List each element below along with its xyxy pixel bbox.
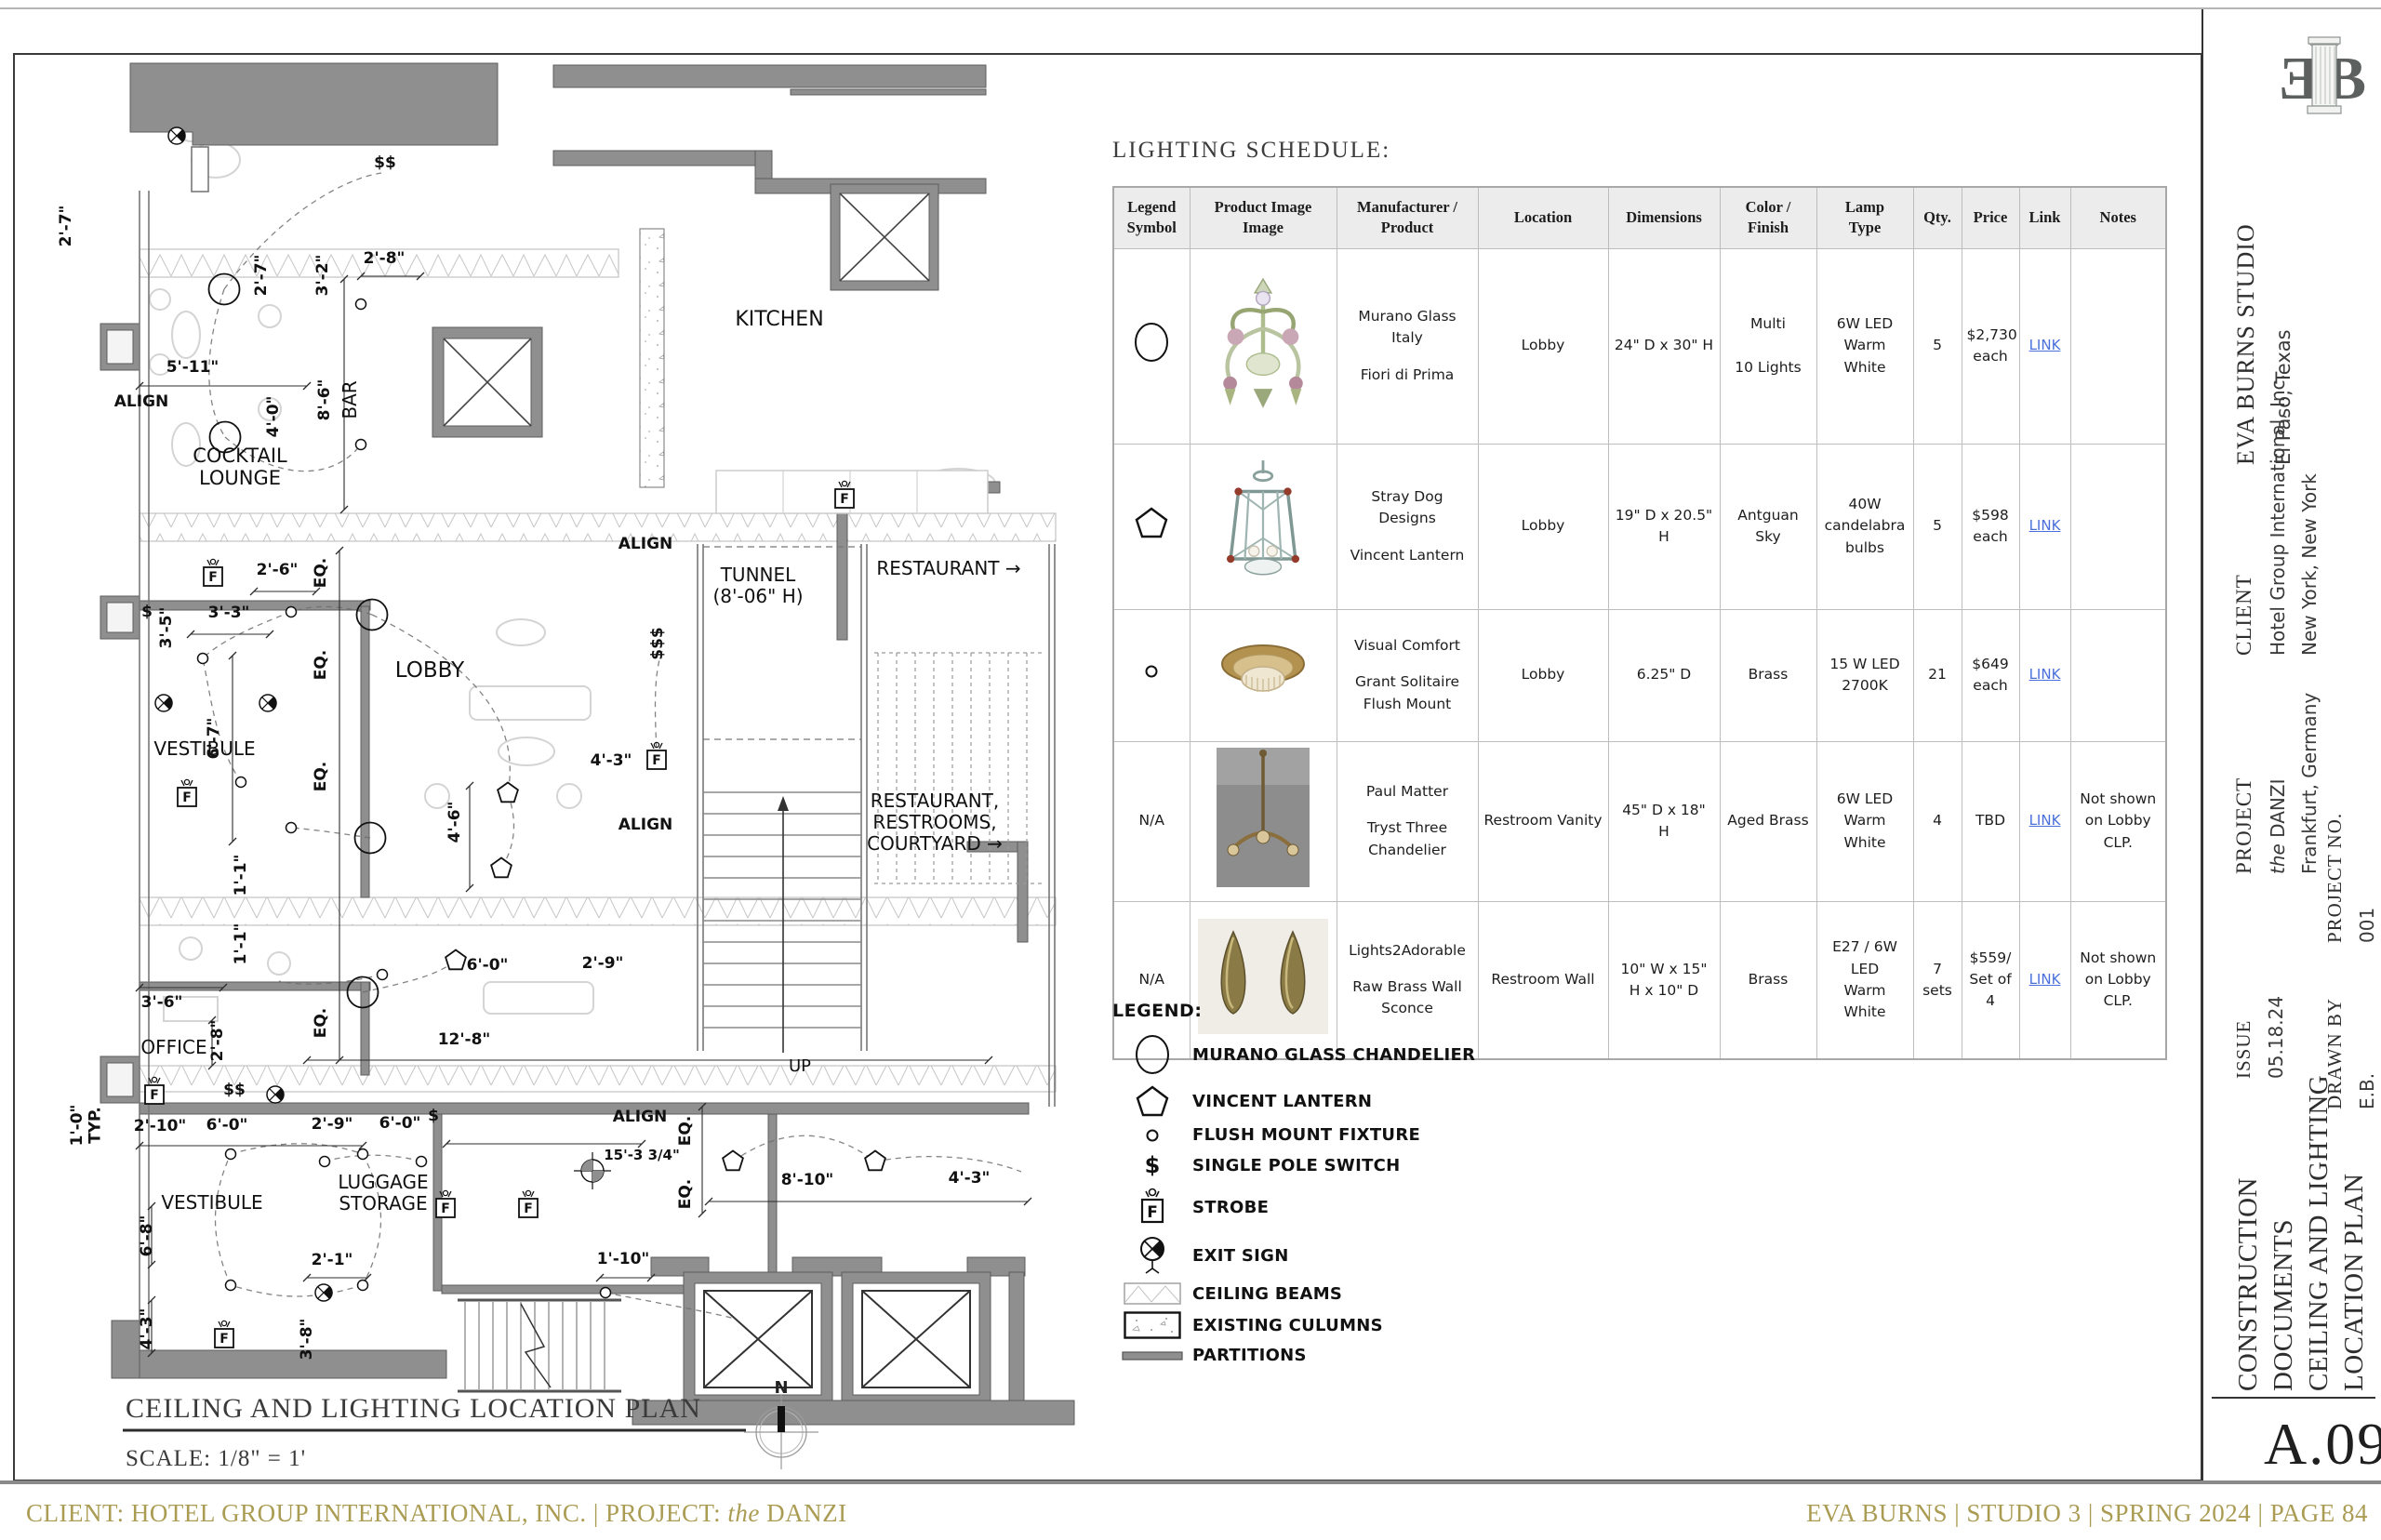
- svg-text:F: F: [150, 1088, 159, 1103]
- product-link[interactable]: LINK: [2029, 666, 2061, 683]
- flush-mount-symbol: [226, 1149, 236, 1160]
- sheet-title-block: CONSTRUCTION DOCUMENTS CEILING AND LIGHT…: [2230, 1066, 2372, 1391]
- lamp-type-cell: 6W LED Warm White: [1816, 741, 1913, 901]
- qty-cell: 21: [1913, 609, 1962, 741]
- notes-cell: [2070, 444, 2166, 609]
- table-row: N/APaul MatterTryst Three ChandelierRest…: [1113, 741, 2166, 901]
- schedule-heading: LIGHTING SCHEDULE:: [1112, 138, 2173, 164]
- lighting-schedule-table: Legend SymbolProduct Image ImageManufact…: [1112, 186, 2167, 1060]
- flush-mount-symbol: [198, 654, 208, 664]
- column-header: Notes: [2070, 187, 2166, 248]
- project-no-block: PROJECT NO. 001: [2318, 802, 2381, 943]
- client-label: CLIENT: [2227, 335, 2262, 656]
- exit-sign-symbol: [259, 695, 276, 711]
- room-label: OFFICE: [140, 1036, 206, 1058]
- column-header: Link: [2019, 187, 2070, 248]
- column-header: Color / Finish: [1720, 187, 1816, 248]
- strobe-symbol: F: [215, 1321, 233, 1347]
- product-link[interactable]: LINK: [2029, 337, 2061, 353]
- existing-columns-icon: [1112, 1311, 1192, 1339]
- flush-mount-symbol: [378, 970, 388, 980]
- legend-item-label: FLUSH MOUNT FIXTURE: [1192, 1125, 1420, 1145]
- dim-label: EQ.: [676, 1179, 695, 1210]
- flush-mount-symbol: [320, 1157, 330, 1167]
- dim-label: $: [428, 1107, 439, 1125]
- vincent-lantern-symbol: [865, 1151, 885, 1171]
- color-finish-cell: Brass: [1720, 901, 1816, 1059]
- column-header: Location: [1478, 187, 1608, 248]
- room-label: KITCHEN: [735, 308, 823, 331]
- room-label: LUGGAGESTORAGE: [338, 1171, 428, 1215]
- footer-right: EVA BURNS | STUDIO 3 | SPRING 2024 | PAG…: [1806, 1499, 2368, 1528]
- dim-label: 1'-1": [232, 923, 250, 965]
- product-image-murano: [1190, 248, 1337, 444]
- titleblock-divider: [2201, 9, 2203, 1480]
- legend-symbol-cell: [1113, 444, 1190, 609]
- product-link[interactable]: LINK: [2029, 812, 2061, 829]
- dim-label: 4'-3": [138, 1308, 156, 1350]
- room-label: LOBBY: [395, 658, 465, 683]
- flush-mount-symbol: [356, 440, 366, 450]
- sheet-number-rule: [2212, 1397, 2375, 1399]
- dim-label: 8'-10": [781, 1171, 834, 1189]
- lamp-type-cell: E27 / 6W LED Warm White: [1816, 901, 1913, 1059]
- client-block: CLIENT Hotel Group International, Inc. N…: [2227, 335, 2325, 656]
- dim-label: 2'-7": [252, 255, 271, 297]
- dim-label: 6'-0": [467, 956, 509, 975]
- logo-column-icon: [2308, 37, 2341, 113]
- dimensions-cell: 45" D x 18" H: [1608, 741, 1720, 901]
- notes-cell: [2070, 248, 2166, 444]
- flush-mount-symbol: [356, 299, 366, 310]
- dim-label: 2'-1": [312, 1251, 353, 1269]
- plan-scale: SCALE: 1/8" = 1': [126, 1446, 306, 1471]
- notes-cell: Not shown on Lobby CLP.: [2070, 741, 2166, 901]
- room-label: BAR: [339, 380, 361, 418]
- vincent-lantern-symbol: [491, 858, 512, 878]
- lamp-type-cell: 40W candelabra bulbs: [1816, 444, 1913, 609]
- legend-item-label: EXIT SIGN: [1192, 1246, 1289, 1266]
- column-header: Price: [1962, 187, 2019, 248]
- dim-label: 2'-10": [134, 1117, 187, 1135]
- svg-text:F: F: [208, 570, 218, 585]
- legend-item-label: EXISTING CULUMNS: [1192, 1316, 1383, 1335]
- dim-label: ALIGN: [114, 392, 169, 411]
- legend-item-label: PARTITIONS: [1192, 1346, 1307, 1365]
- column-header: Product Image Image: [1190, 187, 1337, 248]
- issue-date: 05.18.24: [2260, 975, 2292, 1079]
- dim-label: $$$: [648, 627, 667, 660]
- room-label: RESTAURANT →: [876, 557, 1020, 579]
- dim-label: ALIGN: [619, 535, 673, 553]
- sheet-number: A.09: [2264, 1410, 2381, 1479]
- legend-symbol-cell: [1113, 609, 1190, 741]
- color-finish-cell: Aged Brass: [1720, 741, 1816, 901]
- legend-item: CEILING BEAMS: [1112, 1282, 1633, 1305]
- svg-text:F: F: [652, 753, 661, 768]
- legend-symbol-cell: [1113, 248, 1190, 444]
- strobe-symbol: F: [204, 559, 222, 586]
- legend-item-label: CEILING BEAMS: [1192, 1284, 1342, 1304]
- location-cell: Lobby: [1478, 609, 1608, 741]
- strobe-symbol: F: [178, 779, 196, 806]
- table-row: Stray Dog DesignsVincent LanternLobby19"…: [1113, 444, 2166, 609]
- lighting-schedule: LIGHTING SCHEDULE: Legend SymbolProduct …: [1112, 138, 2173, 1060]
- legend-item: PARTITIONS: [1112, 1346, 1633, 1365]
- price-cell: TBD: [1962, 741, 2019, 901]
- manufacturer-product-cell: Murano Glass ItalyFiori di Prima: [1337, 248, 1478, 444]
- product-image-tryst: [1190, 741, 1337, 901]
- legend-item: VINCENT LANTERN: [1112, 1083, 1633, 1119]
- dim-label: 2'-9": [312, 1115, 353, 1134]
- product-image-lantern: [1190, 444, 1337, 609]
- legend-item: FLUSH MOUNT FIXTURE: [1112, 1125, 1633, 1145]
- lamp-type-cell: 6W LED Warm White: [1816, 248, 1913, 444]
- product-image-flushmount: [1190, 609, 1337, 741]
- legend-item-label: STROBE: [1192, 1198, 1269, 1217]
- ceiling-beams-icon: [1112, 1282, 1192, 1305]
- flush-mount-symbol: [417, 1157, 427, 1167]
- sheet-title-line3: LOCATION PLAN: [2336, 1066, 2372, 1391]
- dim-label: 3'-5": [157, 607, 176, 649]
- manufacturer-product-cell: Stray Dog DesignsVincent Lantern: [1337, 444, 1478, 609]
- pentagon-icon: [1112, 1083, 1192, 1119]
- dim-label: 3'-8": [298, 1319, 316, 1361]
- location-cell: Restroom Vanity: [1478, 741, 1608, 901]
- sheet-bottom-edge: [0, 1480, 2381, 1484]
- color-finish-cell: Brass: [1720, 609, 1816, 741]
- dim-label: EQ.: [676, 1116, 695, 1147]
- dim-label: 3'-3": [208, 604, 250, 622]
- dim-label: 4'-6": [446, 802, 464, 843]
- dim-label: 1'-0"TYP.: [68, 1105, 105, 1147]
- flush-circle-icon: [1112, 1126, 1192, 1145]
- price-cell: $649 each: [1962, 609, 2019, 741]
- notes-cell: Not shown on Lobby CLP.: [2070, 901, 2166, 1059]
- dim-label: 2'-8": [208, 1020, 227, 1062]
- legend-item: $SINGLE POLE SWITCH: [1112, 1151, 1633, 1179]
- flush-mount-symbol: [358, 1281, 368, 1291]
- dim-label: $$: [374, 153, 396, 172]
- dim-label: 2'-8": [364, 249, 406, 268]
- manufacturer-product-cell: Paul MatterTryst Three Chandelier: [1337, 741, 1478, 901]
- dim-label: 3'-2": [313, 255, 332, 297]
- north-label: N: [774, 1378, 788, 1398]
- qty-cell: 4: [1913, 741, 1962, 901]
- flush-mount-symbol: [226, 1281, 236, 1291]
- svg-text:F: F: [219, 1332, 229, 1347]
- dim-label: 1'-10": [597, 1250, 650, 1268]
- dim-label: 6'-0": [379, 1114, 421, 1133]
- price-cell: $598 each: [1962, 444, 2019, 609]
- manufacturer-product-cell: Visual ComfortGrant Solitaire Flush Moun…: [1337, 609, 1478, 741]
- room-label: UP: [789, 1056, 811, 1076]
- column-header: Qty.: [1913, 187, 1962, 248]
- exit-sign-symbol: [168, 127, 185, 144]
- project-no-label: PROJECT NO.: [2318, 802, 2351, 943]
- column-header: Lamp Type: [1816, 187, 1913, 248]
- exit-sign-symbol: [315, 1284, 332, 1301]
- plan-titleblock: CEILING AND LIGHTING LOCATION PLAN SCALE…: [123, 1393, 746, 1471]
- room-label: TUNNEL(8'-06" H): [712, 564, 803, 607]
- svg-text:$: $: [1145, 1152, 1161, 1178]
- qty-cell: 5: [1913, 444, 1962, 609]
- sheet-title-line2: CEILING AND LIGHTING: [2301, 1066, 2336, 1391]
- dim-label: 8'-6": [315, 379, 334, 421]
- price-cell: $2,730 each: [1962, 248, 2019, 444]
- dim-label: 2'-6": [257, 561, 299, 579]
- dim-label: 2'-9": [582, 954, 624, 973]
- room-label: RESTAURANT,RESTROOMS,COURTYARD →: [867, 790, 1003, 855]
- table-row: Murano Glass ItalyFiori di PrimaLobby24"…: [1113, 248, 2166, 444]
- legend-item: EXIT SIGN: [1112, 1235, 1633, 1276]
- price-cell: $559/ Set of 4: [1962, 901, 2019, 1059]
- color-finish-cell: Antguan Sky: [1720, 444, 1816, 609]
- legend-item: EXISTING CULUMNS: [1112, 1311, 1633, 1339]
- strobe-symbol: F: [519, 1190, 538, 1217]
- issue-block: ISSUE 05.18.24: [2227, 975, 2292, 1079]
- vincent-lantern-symbol: [498, 783, 518, 803]
- project-block: PROJECT the DANZI Frankfurt, Germany: [2227, 651, 2325, 874]
- svg-text:F: F: [441, 1201, 450, 1216]
- partitions-icon: [1112, 1350, 1192, 1361]
- client-city: New York, New York: [2294, 335, 2325, 656]
- flush-mount-symbol: [358, 1149, 368, 1160]
- column-header: Legend Symbol: [1113, 187, 1190, 248]
- room-label: VESTIBULE: [161, 1191, 262, 1214]
- legend-item-label: SINGLE POLE SWITCH: [1192, 1156, 1401, 1175]
- column-header: Manufacturer / Product: [1337, 187, 1478, 248]
- dim-label: 3'-6": [141, 993, 183, 1012]
- dim-label: EQ.: [312, 650, 330, 681]
- legend-symbol-cell: N/A: [1113, 741, 1190, 901]
- project-label: PROJECT: [2227, 651, 2262, 874]
- drawing-sheet: FFFFFFFF KITCHENBARCOCKTAILLOUNGELOBBYVE…: [0, 0, 2381, 1540]
- exit-sign-icon: [1112, 1235, 1192, 1276]
- column-header: Dimensions: [1608, 187, 1720, 248]
- murano-circle-icon: [1112, 1032, 1192, 1077]
- svg-text:F: F: [182, 790, 192, 805]
- legend-item-label: VINCENT LANTERN: [1192, 1092, 1372, 1111]
- project-no-value: 001: [2351, 802, 2381, 943]
- dim-label: EQ.: [312, 762, 330, 792]
- product-link[interactable]: LINK: [2029, 517, 2061, 534]
- dimensions-cell: 19" D x 20.5" H: [1608, 444, 1720, 609]
- project-name: the DANZI: [2262, 651, 2294, 874]
- studio-logo: E B: [2277, 32, 2375, 125]
- dim-label: 5'-11": [166, 358, 219, 377]
- qty-cell: 7 sets: [1913, 901, 1962, 1059]
- vincent-lantern-symbol: [446, 950, 466, 970]
- dim-label: $: [141, 603, 153, 621]
- room-label: COCKTAILLOUNGE: [193, 445, 287, 489]
- exit-sign-symbol: [267, 1086, 284, 1103]
- dim-label: 1'-1": [232, 855, 250, 896]
- dim-label: 4'-0": [264, 396, 283, 438]
- dim-label: 6'-7": [205, 718, 223, 760]
- client-name: Hotel Group International, Inc.: [2262, 335, 2294, 656]
- sheet-title-line1: CONSTRUCTION DOCUMENTS: [2230, 1066, 2301, 1391]
- vincent-lantern-symbol: [723, 1151, 743, 1171]
- svg-text:F: F: [524, 1201, 533, 1216]
- flush-mount-symbol: [286, 823, 297, 833]
- dim-label: 2'-7": [57, 206, 75, 247]
- svg-text:F: F: [840, 492, 849, 507]
- qty-cell: 5: [1913, 248, 1962, 444]
- issue-label: ISSUE: [2227, 975, 2260, 1079]
- notes-cell: [2070, 609, 2166, 741]
- strobe-icon: F: [1112, 1186, 1192, 1228]
- legend-heading: LEGEND:: [1112, 1001, 1633, 1021]
- legend-item-label: MURANO GLASS CHANDELIER: [1192, 1045, 1475, 1065]
- flush-mount-symbol: [286, 607, 297, 617]
- dim-label: 4'-3": [949, 1169, 991, 1188]
- exit-sign-symbol: [155, 695, 172, 711]
- dim-label: 15'-3 3/4": [604, 1147, 680, 1163]
- legend-item: MURANO GLASS CHANDELIER: [1112, 1032, 1633, 1077]
- lamp-type-cell: 15 W LED 2700K: [1816, 609, 1913, 741]
- svg-text:F: F: [1147, 1203, 1158, 1222]
- color-finish-cell: Multi 10 Lights: [1720, 248, 1816, 444]
- footer-left: CLIENT: HOTEL GROUP INTERNATIONAL, INC. …: [26, 1499, 847, 1528]
- dim-label: ALIGN: [619, 816, 673, 834]
- switch-dollar-icon: $: [1112, 1151, 1192, 1179]
- flush-mount-symbol: [236, 777, 246, 788]
- dim-label: 6'-8": [138, 1215, 156, 1257]
- dim-label: EQ.: [312, 558, 330, 589]
- location-cell: Lobby: [1478, 248, 1608, 444]
- product-link[interactable]: LINK: [2029, 971, 2061, 988]
- legend: LEGEND: MURANO GLASS CHANDELIERVINCENT L…: [1112, 1001, 1633, 1372]
- dim-label: ALIGN: [613, 1108, 668, 1126]
- dimensions-cell: 6.25" D: [1608, 609, 1720, 741]
- dim-label: 4'-3": [591, 751, 632, 770]
- dim-label: $$: [223, 1081, 246, 1099]
- dimensions-cell: 24" D x 30" H: [1608, 248, 1720, 444]
- dim-label: 6'-0": [206, 1116, 248, 1135]
- table-row: Visual ComfortGrant Solitaire Flush Moun…: [1113, 609, 2166, 741]
- flush-mount-symbol: [601, 1288, 611, 1298]
- location-cell: Lobby: [1478, 444, 1608, 609]
- dim-label: 12'-8": [438, 1030, 491, 1049]
- plan-title: CEILING AND LIGHTING LOCATION PLAN: [126, 1393, 701, 1424]
- legend-item: FSTROBE: [1112, 1186, 1633, 1228]
- dim-label: EQ.: [312, 1008, 330, 1039]
